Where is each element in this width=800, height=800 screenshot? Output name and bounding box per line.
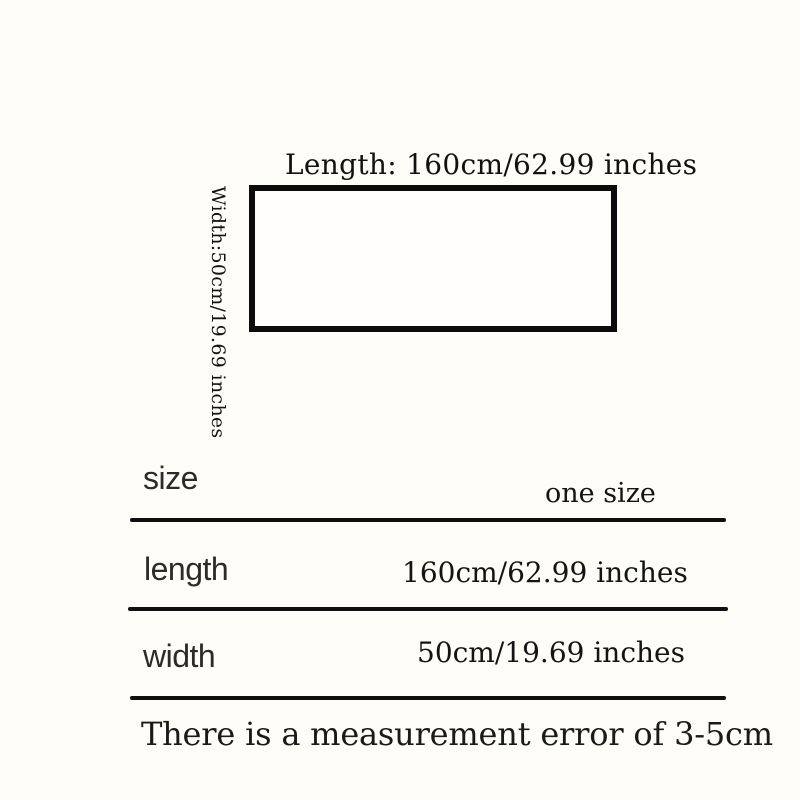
width-row-value: 50cm/19.69 inches: [417, 639, 685, 667]
length-dimension-label: Length: 160cm/62.99 inches: [285, 151, 697, 179]
length-row-value: 160cm/62.99 inches: [402, 559, 688, 587]
table-divider: [128, 607, 728, 611]
length-row-label: length: [144, 553, 228, 585]
table-divider: [130, 696, 726, 700]
table-divider: [130, 518, 726, 522]
size-row-value: one size: [545, 480, 656, 507]
width-row-label: width: [143, 640, 215, 672]
width-dimension-label: Width:50cm/19.69 inches: [208, 186, 227, 438]
size-row-label: size: [143, 462, 198, 494]
measurement-error-note: There is a measurement error of 3-5cm: [141, 718, 773, 750]
size-diagram-rectangle: [249, 185, 617, 332]
